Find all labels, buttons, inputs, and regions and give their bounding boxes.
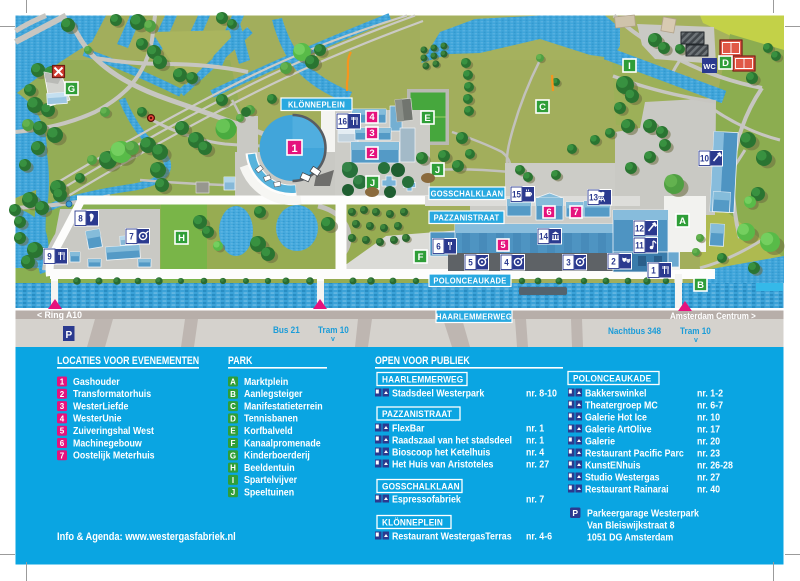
svg-text:nr. 4-6: nr. 4-6 (526, 531, 552, 543)
svg-text:6: 6 (60, 439, 65, 448)
svg-text:12: 12 (635, 223, 644, 234)
svg-text:PAZZANISTRAAT: PAZZANISTRAAT (434, 213, 500, 223)
svg-text:B: B (697, 280, 704, 291)
svg-text:Stadsdeel Westerpark: Stadsdeel Westerpark (392, 388, 485, 400)
svg-text:POLONCEAUKADE: POLONCEAUKADE (433, 276, 506, 286)
svg-text:Het Huis van Aristoteles: Het Huis van Aristoteles (392, 459, 493, 471)
svg-text:Amsterdam Centrum >: Amsterdam Centrum > (670, 310, 756, 321)
svg-text:D: D (722, 58, 729, 69)
svg-text:2: 2 (369, 148, 374, 159)
svg-text:2: 2 (60, 390, 65, 399)
svg-text:4: 4 (504, 257, 509, 268)
svg-text:A: A (679, 216, 686, 227)
svg-text:5: 5 (468, 257, 473, 268)
svg-text:Bus 21: Bus 21 (273, 324, 300, 335)
svg-text:1: 1 (60, 378, 65, 387)
svg-text:Parkeergarage Westerpark: Parkeergarage Westerpark (587, 508, 700, 520)
svg-text:H: H (230, 464, 236, 473)
svg-text:Transformatorhuis: Transformatorhuis (73, 389, 151, 401)
svg-text:Galerie Hot Ice: Galerie Hot Ice (585, 412, 647, 424)
svg-text:F: F (418, 252, 424, 263)
svg-text:Oostelijk Meterhuis: Oostelijk Meterhuis (73, 450, 155, 462)
svg-text:Restaurant Pacific Parc: Restaurant Pacific Parc (585, 448, 684, 460)
svg-text:16: 16 (338, 116, 347, 127)
svg-text:Kinderboerderij: Kinderboerderij (244, 450, 310, 462)
svg-text:Van Bleiswijkstraat 8: Van Bleiswijkstraat 8 (587, 520, 675, 532)
svg-text:nr. 23: nr. 23 (697, 448, 720, 460)
svg-text:3: 3 (566, 257, 571, 268)
svg-text:WC: WC (703, 62, 716, 71)
svg-text:Galerie: Galerie (585, 436, 615, 448)
svg-text:1: 1 (651, 265, 656, 276)
svg-text:Galerie ArtOlive: Galerie ArtOlive (585, 424, 652, 436)
svg-text:Kanaalpromenade: Kanaalpromenade (244, 438, 321, 450)
svg-text:GOSSCHALKLAAN: GOSSCHALKLAAN (382, 481, 460, 492)
svg-text:E: E (424, 113, 430, 124)
svg-text:G: G (230, 451, 236, 460)
svg-text:6: 6 (546, 207, 551, 218)
svg-text:1051 DG Amsterdam: 1051 DG Amsterdam (587, 532, 673, 544)
svg-text:4: 4 (60, 414, 65, 423)
svg-text:nr. 27: nr. 27 (526, 459, 549, 471)
svg-text:< Ring A10: < Ring A10 (37, 310, 82, 320)
svg-text:I: I (232, 476, 234, 485)
svg-text:Beeldentuin: Beeldentuin (244, 462, 295, 474)
svg-text:P: P (572, 508, 578, 518)
svg-text:C: C (230, 402, 236, 411)
svg-text:KLÖNNEPLEIN: KLÖNNEPLEIN (382, 517, 443, 528)
svg-text:8: 8 (78, 213, 83, 224)
svg-text:10: 10 (700, 153, 709, 164)
svg-text:Aanlegsteiger: Aanlegsteiger (244, 389, 303, 401)
svg-text:9: 9 (47, 251, 52, 262)
svg-text:7: 7 (129, 231, 134, 242)
svg-text:WesterUnie: WesterUnie (73, 413, 122, 425)
svg-text:15: 15 (512, 189, 521, 200)
svg-text:Gashouder: Gashouder (73, 376, 120, 388)
svg-text:PAZZANISTRAAT: PAZZANISTRAAT (382, 408, 452, 419)
svg-text:Korfbalveld: Korfbalveld (244, 425, 293, 437)
svg-text:nr. 1-2: nr. 1-2 (697, 388, 723, 400)
svg-text:nr. 1: nr. 1 (526, 435, 545, 447)
svg-text:Machinegebouw: Machinegebouw (73, 438, 142, 450)
svg-text:Restaurant Rainarai: Restaurant Rainarai (585, 484, 669, 496)
svg-text:7: 7 (573, 207, 578, 218)
svg-text:C: C (539, 102, 546, 113)
svg-text:KLÖNNEPLEIN: KLÖNNEPLEIN (288, 100, 345, 110)
svg-text:Manifestatieterrein: Manifestatieterrein (244, 401, 323, 413)
svg-text:J: J (435, 165, 440, 176)
svg-text:Tram 10: Tram 10 (680, 325, 711, 336)
svg-text:Bioscoop het Ketelhuis: Bioscoop het Ketelhuis (392, 447, 490, 459)
svg-text:P: P (66, 330, 73, 341)
svg-text:Marktplein: Marktplein (244, 376, 288, 388)
svg-text:Restaurant WestergasTerras: Restaurant WestergasTerras (392, 531, 512, 543)
svg-text:14: 14 (539, 231, 548, 242)
svg-text:nr. 8-10: nr. 8-10 (526, 388, 557, 400)
svg-text:7: 7 (60, 451, 65, 460)
svg-text:nr. 20: nr. 20 (697, 436, 720, 448)
svg-text:FlexBar: FlexBar (392, 423, 425, 435)
svg-text:5: 5 (500, 240, 506, 251)
svg-text:v: v (331, 336, 335, 343)
svg-text:GOSSCHALKLAAN: GOSSCHALKLAAN (431, 189, 504, 199)
svg-text:Speeltuinen: Speeltuinen (244, 487, 294, 499)
svg-text:H: H (178, 233, 185, 244)
svg-text:KunstENhuis: KunstENhuis (585, 460, 641, 472)
svg-text:OPEN VOOR PUBLIEK: OPEN VOOR PUBLIEK (375, 355, 470, 367)
svg-text:Espressofabriek: Espressofabriek (392, 494, 461, 506)
svg-text:nr. 10: nr. 10 (697, 412, 720, 424)
svg-text:Theatergroep MC: Theatergroep MC (585, 400, 658, 412)
svg-text:11: 11 (635, 240, 644, 251)
svg-text:Studio Westergas: Studio Westergas (585, 472, 660, 484)
svg-text:Bakkerswinkel: Bakkerswinkel (585, 388, 646, 400)
svg-text:A: A (230, 378, 236, 387)
svg-text:WesterLiefde: WesterLiefde (73, 401, 128, 413)
svg-text:13: 13 (589, 192, 598, 203)
svg-text:nr. 1: nr. 1 (526, 423, 545, 435)
svg-text:nr. 6-7: nr. 6-7 (697, 400, 723, 412)
svg-text:Spartelvijver: Spartelvijver (244, 475, 297, 487)
svg-text:I: I (628, 61, 631, 72)
svg-text:nr. 17: nr. 17 (697, 424, 720, 436)
svg-text:nr. 7: nr. 7 (526, 494, 544, 506)
svg-text:Zuiveringshal West: Zuiveringshal West (73, 425, 155, 437)
svg-text:nr. 26-28: nr. 26-28 (697, 460, 734, 472)
svg-text:5: 5 (60, 427, 65, 436)
svg-text:POLONCEAUKADE: POLONCEAUKADE (573, 373, 651, 384)
svg-text:4: 4 (369, 112, 375, 123)
svg-text:J: J (231, 488, 235, 497)
svg-text:E: E (230, 427, 236, 436)
svg-text:1: 1 (291, 143, 297, 155)
svg-text:nr. 27: nr. 27 (697, 472, 720, 484)
svg-text:v: v (694, 337, 698, 344)
svg-text:3: 3 (369, 128, 374, 139)
svg-text:2: 2 (611, 256, 616, 267)
svg-text:Tram 10: Tram 10 (318, 324, 349, 335)
svg-text:Raadszaal van het stadsdeel: Raadszaal van het stadsdeel (392, 435, 512, 447)
svg-text:D: D (230, 414, 236, 423)
svg-text:G: G (68, 84, 75, 95)
svg-text:Nachtbus 348: Nachtbus 348 (608, 325, 661, 336)
svg-text:HAARLEMMERWEG: HAARLEMMERWEG (382, 374, 463, 385)
svg-text:PARK: PARK (228, 355, 253, 367)
svg-text:LOCATIES VOOR EVENEMENTEN: LOCATIES VOOR EVENEMENTEN (57, 355, 199, 367)
svg-text:6: 6 (436, 241, 441, 252)
svg-text:F: F (231, 439, 236, 448)
svg-text:Tennisbanen: Tennisbanen (244, 413, 298, 425)
svg-text:B: B (230, 390, 236, 399)
svg-text:nr. 40: nr. 40 (697, 484, 720, 496)
svg-text:3: 3 (60, 402, 65, 411)
svg-text:HAARLEMMERWEG: HAARLEMMERWEG (436, 312, 512, 322)
svg-text:nr. 4: nr. 4 (526, 447, 545, 459)
svg-text:Info & Agenda: www.westergasfa: Info & Agenda: www.westergasfabriek.nl (57, 531, 236, 543)
